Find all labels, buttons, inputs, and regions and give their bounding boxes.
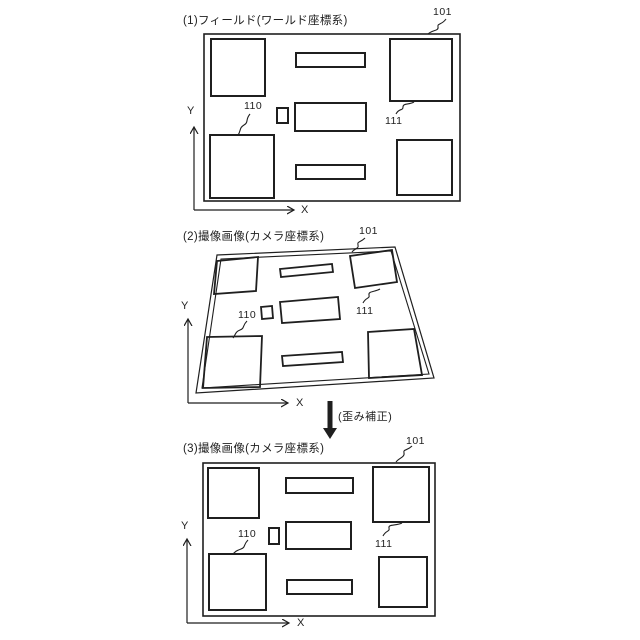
panel3-small-marker — [269, 528, 279, 544]
panel2-bar-top — [280, 264, 333, 277]
panel1-title: (1)フィールド(ワールド座標系) — [183, 16, 348, 28]
panel2-y-axis-label: Y — [181, 301, 188, 312]
panel1-marker-square-bottom-right — [397, 140, 452, 195]
panel3-title: (3)撮像画像(カメラ座標系) — [183, 444, 324, 456]
patent-figure-canvas: (1)フィールド(ワールド座標系) 101 110 111 Y X (2)撮像画… — [0, 0, 640, 640]
panel1-leader-111 — [396, 102, 414, 114]
panel1-marker-square-bottom-left — [210, 135, 274, 198]
panel2-marker-square-top-right — [350, 250, 397, 288]
panel2-ref-111-label: 111 — [356, 306, 373, 317]
panel1-marker-square-top-left — [211, 39, 265, 96]
panel3-y-axis-label: Y — [181, 521, 188, 532]
panel3-x-axis-label: X — [297, 618, 304, 629]
panel3-bar-top — [286, 478, 353, 493]
panel3-marker-square-bottom-left — [209, 554, 266, 610]
panel2-title: (2)撮像画像(カメラ座標系) — [183, 232, 324, 244]
panel1-field-outline — [204, 34, 460, 201]
panel1-leader-110 — [238, 114, 250, 135]
figure-linework — [0, 0, 640, 640]
panel3-marker-square-bottom-right — [379, 557, 427, 607]
panel1-bar-bottom — [296, 165, 365, 179]
panel1-ref-111-label: 111 — [385, 116, 402, 127]
panel2-leader-101 — [352, 238, 365, 252]
panel2-bar-bottom — [282, 352, 343, 366]
panel2-bar-middle — [280, 297, 340, 323]
panel3-ref-101-label: 101 — [406, 436, 425, 447]
panel1-ref-101-label: 101 — [433, 7, 452, 18]
panel2-marker-square-bottom-left — [203, 336, 262, 388]
panel3-bar-middle — [286, 522, 351, 549]
panel1-leader-101 — [428, 19, 446, 34]
distortion-correction-arrow — [323, 401, 337, 439]
panel3-leader-111 — [383, 523, 402, 536]
panel2-x-axis-label: X — [296, 398, 303, 409]
panel3-marker-square-top-right — [373, 467, 429, 522]
panel3-bar-bottom — [287, 580, 352, 594]
panel1-bar-top — [296, 53, 365, 67]
panel2-marker-square-bottom-right — [368, 329, 422, 378]
panel3-ref-111-label: 111 — [375, 539, 392, 550]
panel3-ref-110-label: 110 — [238, 529, 256, 540]
panel3-corrected-image-diagram — [187, 446, 435, 623]
panel1-ref-110-label: 110 — [244, 101, 262, 112]
panel3-leader-110 — [233, 540, 248, 554]
panel2-leader-111 — [363, 289, 380, 303]
panel1-x-axis-label: X — [301, 205, 308, 216]
distortion-correction-label: (歪み補正) — [338, 412, 392, 423]
panel1-field-diagram — [194, 19, 460, 210]
panel2-ref-110-label: 110 — [238, 310, 256, 321]
panel1-y-axis-label: Y — [187, 106, 194, 117]
panel1-small-marker — [277, 108, 288, 123]
panel2-small-marker — [261, 306, 273, 319]
panel3-marker-square-top-left — [208, 468, 259, 518]
panel3-leader-101 — [396, 446, 412, 462]
panel2-distorted-image-diagram — [188, 238, 434, 403]
panel1-marker-square-top-right — [390, 39, 452, 101]
panel2-ref-101-label: 101 — [359, 226, 378, 237]
panel1-bar-middle — [295, 103, 366, 131]
